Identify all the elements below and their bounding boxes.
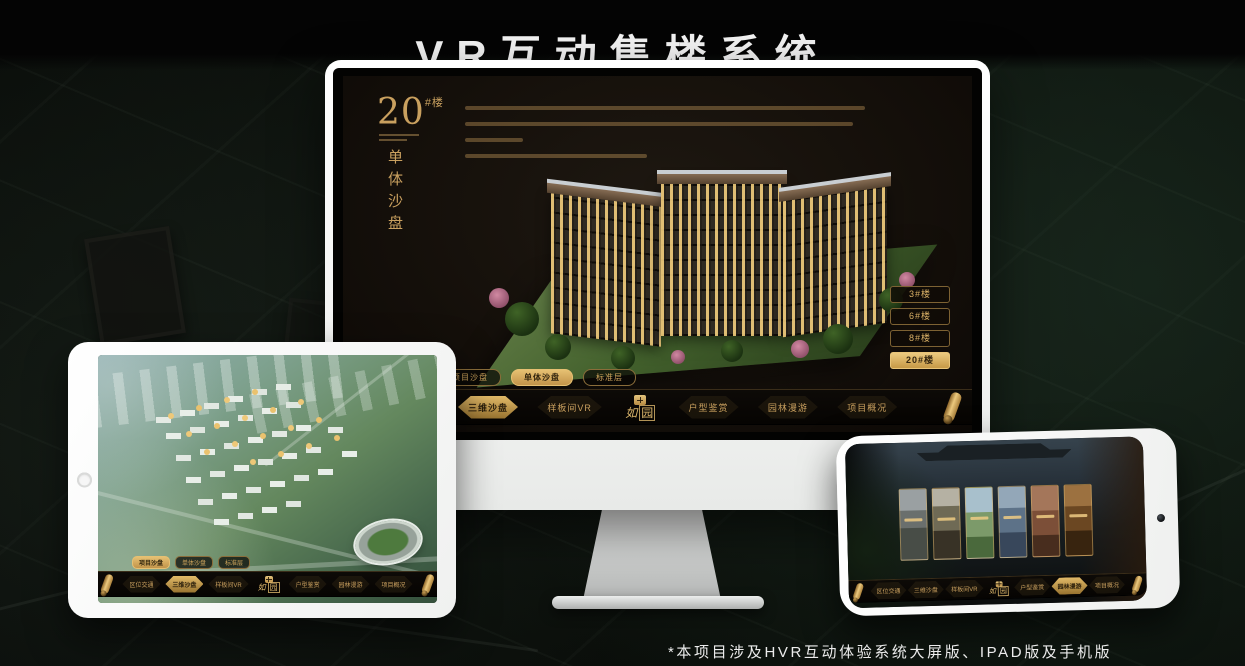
scroll-ornament-icon	[421, 573, 435, 595]
seal-icon	[634, 395, 646, 405]
nav-item-project-overview[interactable]: 项目概况	[379, 578, 409, 591]
subtab-single-building[interactable]: 单体沙盘	[511, 369, 573, 386]
heading-caption-line	[379, 134, 419, 136]
tablet-navbar: 区位交通 三维沙盘 样板间VR 如园 户型鉴赏 园林漫游 项目概况	[98, 571, 437, 597]
building-unit: #楼	[425, 97, 444, 109]
scene-thumbnail[interactable]	[1064, 484, 1094, 557]
building-wing-right	[783, 187, 887, 338]
floor-button-3[interactable]: 3#楼	[890, 286, 950, 303]
building-wing-center	[661, 184, 783, 336]
tablet-device: 项目沙盘 单体沙盘 标准层 区位交通 三维沙盘 样板间VR 如园 户型鉴赏 园林…	[68, 342, 456, 618]
nav-item-floorplan[interactable]: 户型鉴赏	[683, 398, 735, 417]
subtab-standard-floor[interactable]: 标准层	[218, 556, 250, 569]
camera-icon	[1157, 514, 1165, 522]
nav-item-location-traffic[interactable]: 区位交通	[874, 584, 902, 598]
nav-item-3d-sandbox[interactable]: 三维沙盘	[912, 583, 940, 597]
nav-item-model-room-vr[interactable]: 样板间VR	[949, 582, 980, 596]
scene-thumbnail[interactable]	[998, 486, 1028, 559]
monitor-stand-foot	[552, 596, 764, 609]
nav-item-location-traffic[interactable]: 区位交通	[126, 578, 156, 591]
scene-gallery	[899, 484, 1094, 561]
nav-item-garden-tour[interactable]: 园林漫游	[762, 398, 814, 417]
wall-plaque	[84, 226, 186, 346]
tablet-screen: 项目沙盘 单体沙盘 标准层 区位交通 三维沙盘 样板间VR 如园 户型鉴赏 园林…	[98, 355, 437, 603]
tree	[823, 324, 853, 354]
scene-thumbnail[interactable]	[1031, 485, 1061, 558]
nav-item-project-overview[interactable]: 项目概况	[841, 398, 893, 417]
scroll-ornament-icon	[852, 582, 864, 600]
brand-logo-text: 如园	[625, 407, 655, 419]
nav-item-floorplan[interactable]: 户型鉴赏	[1018, 580, 1046, 594]
poster-stage: VR互动售楼系统 20#楼 单体沙盘	[0, 0, 1245, 666]
scroll-ornament-icon	[1131, 575, 1143, 593]
heading-caption-line	[379, 139, 407, 141]
nav-item-garden-tour[interactable]: 园林漫游	[1055, 579, 1083, 593]
heading-subtitle: 单体沙盘	[385, 149, 406, 269]
tree	[611, 346, 635, 370]
monitor-stand-neck	[583, 508, 721, 600]
subtab-project-sandbox[interactable]: 项目沙盘	[132, 556, 170, 569]
footnote: *本项目涉及HVR互动体验系统大屏版、IPAD版及手机版	[668, 641, 1112, 662]
tablet-subtabs: 项目沙盘 单体沙盘 标准层	[132, 556, 250, 569]
brand-logo[interactable]: 如园	[258, 576, 280, 592]
floor-button-6[interactable]: 6#楼	[890, 308, 950, 325]
tree	[505, 302, 539, 336]
building-heading: 20#楼 单体沙盘	[377, 94, 444, 269]
brand-logo[interactable]: 如园	[989, 581, 1009, 596]
monitor-subtabs: 项目沙盘 单体沙盘 标准层	[439, 369, 636, 386]
nav-item-project-overview[interactable]: 项目概况	[1093, 578, 1121, 592]
floor-button-group: 3#楼 6#楼 8#楼 20#楼	[890, 286, 950, 374]
nav-item-3d-sandbox[interactable]: 三维沙盘	[462, 398, 514, 417]
scene-thumbnail[interactable]	[932, 487, 962, 560]
phone-device: 区位交通 三维沙盘 样板间VR 如园 户型鉴赏 园林漫游 项目概况	[836, 428, 1181, 617]
flower-bush	[489, 288, 509, 308]
tree	[545, 334, 571, 360]
home-button[interactable]	[77, 473, 92, 488]
nav-item-row: 区位交通 三维沙盘 样板间VR 如园 户型鉴赏 园林漫游 项目概况	[116, 576, 419, 592]
tree	[721, 340, 743, 362]
nav-item-model-room-vr[interactable]: 样板间VR	[212, 578, 244, 591]
scene-thumbnail[interactable]	[965, 486, 995, 559]
scroll-ornament-icon	[942, 391, 963, 423]
flower-bush	[671, 350, 685, 364]
subtab-single-building[interactable]: 单体沙盘	[175, 556, 213, 569]
nav-item-garden-tour[interactable]: 园林漫游	[336, 578, 366, 591]
brand-logo[interactable]: 如园	[625, 395, 655, 419]
nav-item-3d-sandbox[interactable]: 三维沙盘	[169, 578, 199, 591]
building-number-badges	[168, 413, 174, 419]
floor-button-8[interactable]: 8#楼	[890, 330, 950, 347]
building-wing-left	[551, 193, 661, 347]
description-line	[465, 122, 853, 126]
phone-screen: 区位交通 三维沙盘 样板间VR 如园 户型鉴赏 园林漫游 项目概况	[845, 436, 1147, 608]
flower-bush	[791, 340, 809, 358]
scene-thumbnail[interactable]	[899, 488, 929, 561]
brand-logo-text: 如园	[258, 584, 280, 592]
brand-logo-text: 如园	[989, 588, 1009, 596]
nav-item-model-room-vr[interactable]: 样板间VR	[541, 398, 598, 417]
nav-item-row: 区位交通 三维沙盘 样板间VR 如园 户型鉴赏 园林漫游 项目概况	[868, 577, 1128, 598]
description-line	[465, 106, 865, 110]
scroll-ornament-icon	[100, 573, 114, 595]
floor-button-20[interactable]: 20#楼	[890, 352, 950, 369]
subtab-standard-floor[interactable]: 标准层	[583, 369, 636, 386]
nav-item-floorplan[interactable]: 户型鉴赏	[293, 578, 323, 591]
building-number: 20	[377, 92, 425, 133]
